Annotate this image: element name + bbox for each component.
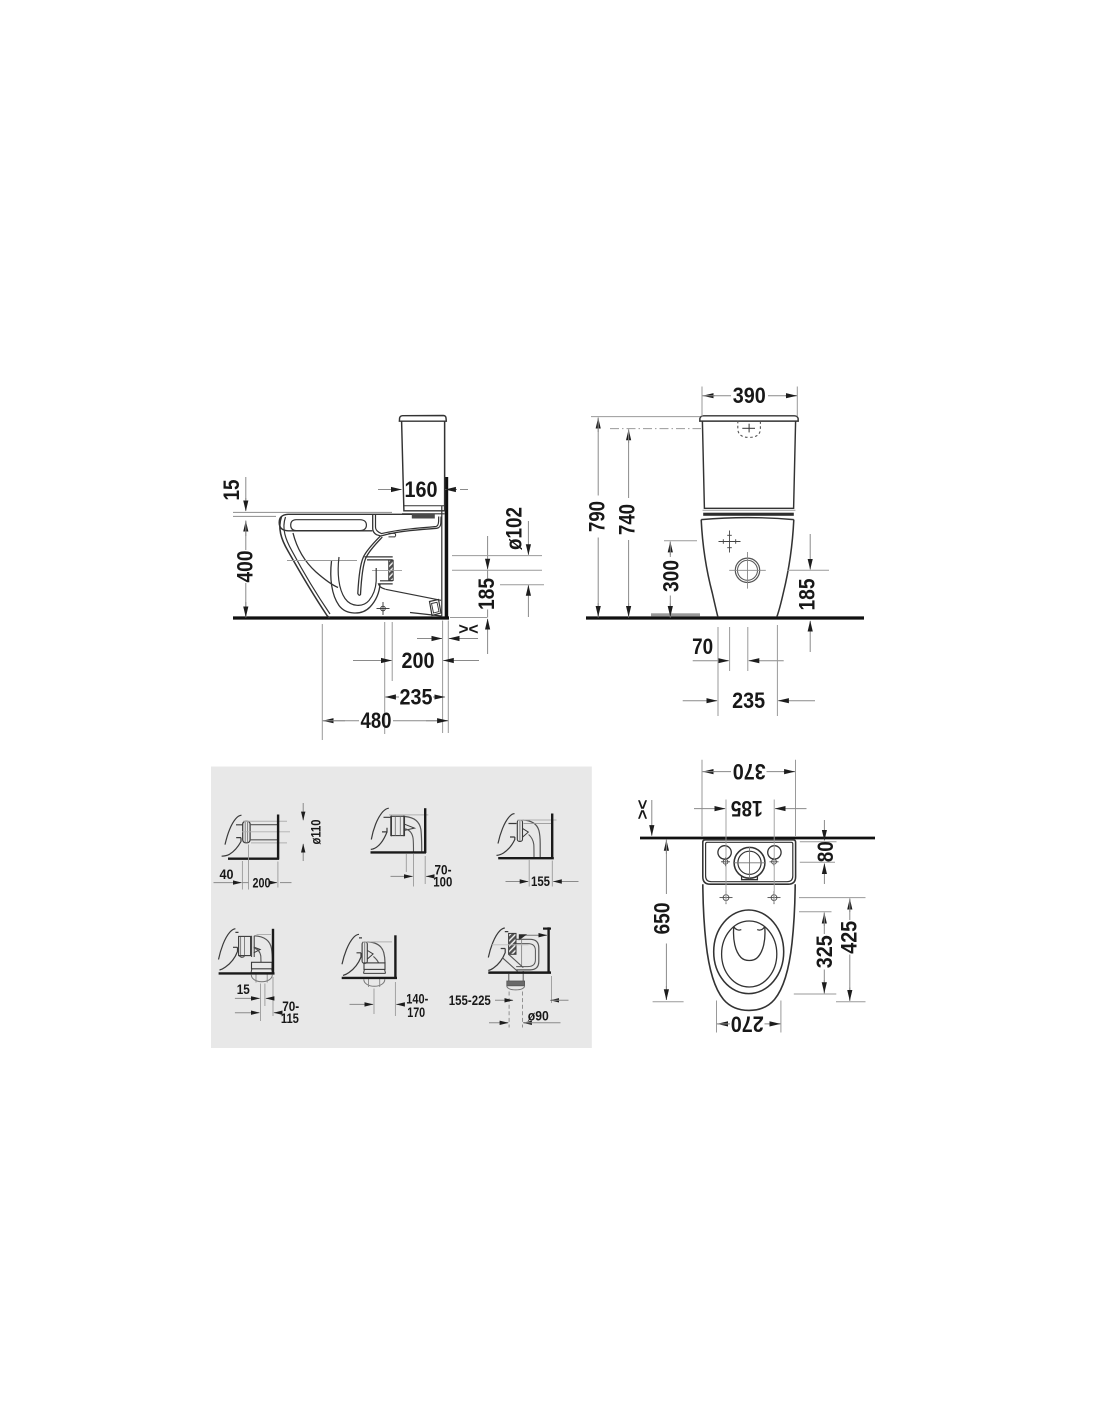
svg-text:170: 170 [407,1005,425,1020]
svg-text:425: 425 [836,921,861,954]
svg-text:15: 15 [237,982,250,997]
svg-text:80: 80 [813,841,838,862]
svg-text:ø102: ø102 [502,507,527,550]
svg-text:325: 325 [812,935,837,968]
svg-text:650: 650 [649,903,674,935]
svg-text:400: 400 [232,551,257,583]
svg-text:155: 155 [531,874,550,889]
svg-text:300: 300 [658,560,683,592]
svg-text:270: 270 [731,1011,764,1036]
svg-text:40: 40 [220,867,234,882]
svg-text:><: >< [459,621,479,639]
svg-text:480: 480 [361,708,392,733]
svg-text:185: 185 [474,578,499,610]
svg-text:100: 100 [433,875,452,890]
svg-text:ø90: ø90 [528,1009,549,1024]
svg-text:15: 15 [219,480,244,501]
svg-text:370: 370 [733,759,766,784]
svg-text:185: 185 [731,796,763,821]
svg-text:200: 200 [402,648,435,673]
svg-text:ø110: ø110 [308,820,323,845]
svg-text:185: 185 [794,579,819,611]
svg-text:200: 200 [253,875,271,890]
svg-text:160: 160 [405,477,438,502]
svg-text:155-225: 155-225 [449,993,491,1008]
svg-text:115: 115 [281,1011,299,1026]
svg-text:235: 235 [400,685,433,710]
svg-text:70: 70 [692,634,713,659]
svg-text:390: 390 [733,383,766,408]
svg-text:><: >< [633,800,651,820]
svg-text:790: 790 [584,501,609,532]
svg-text:235: 235 [732,688,765,713]
svg-text:740: 740 [615,504,640,535]
